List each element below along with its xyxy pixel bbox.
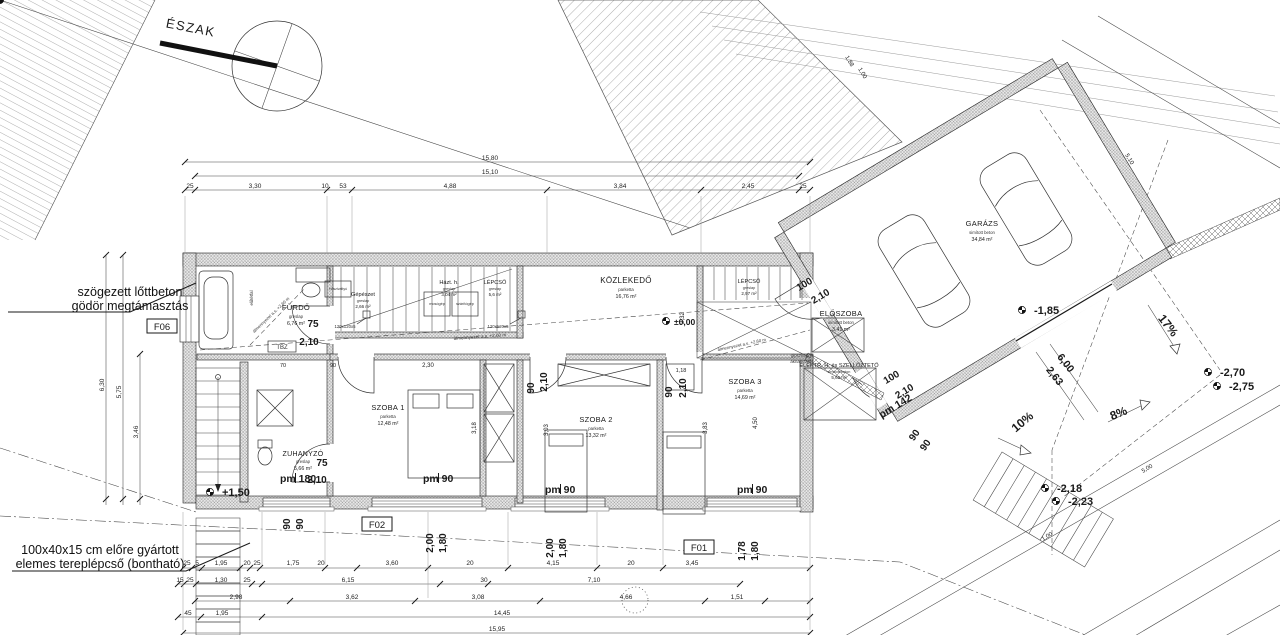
floor-plan-sheet: ÉSZAK szögezett lőttbeton gödör megtámas… [0, 0, 1280, 635]
dim-label: 1,80 [438, 533, 449, 553]
wall-liner-label: előtétfal [249, 290, 254, 305]
dim-label: 4,88 [444, 183, 457, 190]
dim-label: 15,80 [482, 155, 499, 162]
pm-dividers [296, 473, 753, 494]
dim-label: 2,00 [425, 533, 436, 553]
dim-label: 3,84 [614, 183, 627, 190]
svg-text:SZOBA 1: SZOBA 1 [371, 403, 404, 412]
svg-text:Gépészet: Gépészet [351, 292, 375, 298]
svg-text:greslap: greslap [743, 286, 755, 290]
dim-label: 2,30 [422, 363, 434, 369]
svg-text:greslap: greslap [296, 459, 311, 464]
svg-text:13,32 m²: 13,32 m² [586, 433, 607, 439]
level-drive-b: -2,75 [1229, 381, 1254, 393]
svg-text:LÉPCSŐ: LÉPCSŐ [484, 279, 507, 286]
dim-label: 90 [330, 363, 336, 369]
dim-label: 4,66 [620, 594, 633, 601]
svg-text:parketta: parketta [380, 414, 396, 419]
sill-pm90-szoba3: pm 90 [737, 484, 768, 496]
dim-label: 1,88 [843, 55, 854, 69]
svg-text:parketta: parketta [588, 426, 604, 431]
slope-17: 17% [1155, 312, 1181, 340]
dryer-label: szárítógép [456, 302, 474, 306]
dim-label: 25 [183, 560, 191, 567]
dim-label: 5,00 [1141, 463, 1155, 474]
svg-text:6,76 m²: 6,76 m² [287, 321, 305, 327]
svg-text:ZUHANYZÓ: ZUHANYZÓ [283, 449, 324, 458]
door-swings [292, 277, 887, 482]
svg-text:2,66 m²: 2,66 m² [355, 304, 371, 309]
dim-label: 25 [253, 560, 261, 567]
svg-text:simított beton: simított beton [828, 320, 854, 325]
floor-plan-drawing: ÉSZAK szögezett lőttbeton gödör megtámas… [0, 0, 1280, 635]
note-steps-line1: 100x40x15 cm előre gyártott [21, 543, 179, 557]
dim-label: 25 [243, 577, 251, 584]
slope-8: 8% [1108, 403, 1130, 423]
dim-label: 25 [186, 183, 194, 190]
level-yard-b: -2,23 [1068, 496, 1093, 508]
dim-label: 3,08 [472, 594, 485, 601]
dim-label: 90 [918, 437, 934, 453]
north-arrow [160, 21, 322, 111]
dim-label: 5 [195, 560, 199, 567]
svg-text:12,48 m²: 12,48 m² [378, 421, 399, 427]
bathroom-fixtures [199, 268, 330, 465]
room-label-szoba1: SZOBA 1 parketta 12,48 m² [371, 403, 404, 427]
dim-label: 14,45 [494, 610, 511, 617]
dim-label: 20 [466, 560, 474, 567]
dim-label: 100 [882, 369, 902, 387]
room-label-hazt: Házt. h. greslap 3,04 m² [439, 280, 459, 297]
room-label-garazs: GARÁZS simított beton 34,84 m² [966, 219, 999, 243]
svg-text:ELŐSZOBA: ELŐSZOBA [820, 309, 863, 318]
dim-label: 2,10 [307, 475, 327, 486]
north-label: ÉSZAK [165, 15, 217, 39]
svg-text:SZOBA 2: SZOBA 2 [579, 415, 612, 424]
dim-label: 90 [282, 518, 293, 530]
svg-text:greslap: greslap [289, 314, 304, 319]
dim-label: 1,95 [216, 610, 229, 617]
dim-label: 1,80 [558, 538, 569, 558]
dim-label: 1,80 [750, 541, 761, 561]
svg-text:5,62 m²: 5,62 m² [831, 375, 847, 380]
dim-label: 1,18 [676, 368, 687, 374]
svg-text:Házt. h.: Házt. h. [439, 280, 459, 286]
svg-text:greslap: greslap [443, 287, 455, 291]
dim-label: 20 [317, 560, 325, 567]
slope-10: 10% [1009, 409, 1037, 435]
svg-text:parketta: parketta [618, 287, 634, 292]
dim-label: 30 [480, 577, 488, 584]
dim-label: 90 [664, 386, 675, 398]
note-pit-line1: szögezett lőttbeton [78, 285, 183, 299]
dim-label: 1,78 [737, 541, 748, 561]
dim-label: 70 [280, 363, 286, 369]
dim-label: 6,30 [99, 378, 106, 391]
gypsum-note-2: aknalezárás [790, 359, 813, 364]
dim-label: 20 [243, 560, 251, 567]
dim-label: 2,00 [545, 538, 556, 558]
dim-label: 3,03 [544, 424, 550, 436]
svg-text:3,41 m²: 3,41 m² [832, 327, 850, 333]
svg-text:2,97 m²: 2,97 m² [741, 291, 757, 296]
room-label-lepcso-main: LÉPCSŐ greslap 2,97 m² [738, 278, 761, 296]
heatpump-label: Hőszivattyú [329, 287, 347, 291]
frame-label-f02: F02 [369, 520, 385, 531]
room-label-furdo: FÜRDŐ greslap 6,76 m² [282, 303, 310, 327]
svg-text:5,66 m²: 5,66 m² [294, 466, 312, 472]
dim-label: 15,95 [489, 626, 506, 633]
level-garage-front: -1,85 [1034, 305, 1059, 317]
svg-text:FÜRDŐ: FÜRDŐ [282, 303, 310, 312]
frame-label-f01: F01 [691, 543, 707, 554]
svg-text:5,6 m²: 5,6 m² [489, 292, 502, 297]
svg-text:KÖZLEKEDŐ: KÖZLEKEDŐ [600, 276, 652, 285]
svg-text:LÉPCSŐ: LÉPCSŐ [738, 278, 761, 285]
dim-label: 75 [307, 319, 319, 330]
dim-label: 25 [799, 183, 807, 190]
dim-label: 4,15 [547, 560, 560, 567]
room-label-lepcso-small: LÉPCSŐ greslap 5,6 m² [484, 279, 507, 297]
svg-text:34,84 m²: 34,84 m² [972, 237, 993, 243]
dim-label: 53 [339, 183, 347, 190]
sill-pm90-szoba1: pm 90 [423, 473, 454, 485]
dim-label: 1,75 [287, 560, 300, 567]
dim-label: 2,98 [230, 594, 243, 601]
dim-label: 3,30 [249, 183, 262, 190]
level-drive-a: -2,70 [1220, 367, 1245, 379]
frame-label-f06: F06 [154, 322, 170, 333]
leaders [8, 283, 714, 571]
slope-arrows [998, 305, 1180, 455]
dim-label: 10 [321, 183, 329, 190]
svg-text:greslap: greslap [357, 299, 369, 303]
dim-label: 7,10 [588, 577, 601, 584]
dim-label: 25 [186, 577, 194, 584]
svg-text:simított beton: simított beton [828, 370, 851, 374]
dim-label: 2,45 [742, 183, 755, 190]
column-label-2: 120x120x5 [487, 324, 509, 329]
dim-label: 2,10 [539, 372, 550, 392]
svg-text:parketta: parketta [737, 388, 753, 393]
svg-text:14,69 m²: 14,69 m² [735, 395, 756, 401]
dim-label: 15,10 [482, 169, 499, 176]
dim-label: 1,51 [731, 594, 744, 601]
room-label-szoba2: SZOBA 2 parketta 13,32 m² [579, 415, 612, 439]
entrance-stair [196, 368, 240, 495]
svg-text:3,04 m²: 3,04 m² [441, 292, 457, 297]
room-label-kozlekedo: KÖZLEKEDŐ parketta 16,76 m² [600, 276, 652, 300]
dim-label: 1,00 [1041, 531, 1055, 542]
dim-label: 4,50 [753, 417, 759, 429]
dim-label: 2,10 [678, 378, 689, 398]
room-label-gepeszet: Gépészet greslap 2,66 m² [351, 292, 375, 309]
terrain-hatching [0, 0, 902, 240]
svg-text:16,76 m²: 16,76 m² [616, 294, 637, 300]
washer-label: mosógép [429, 302, 445, 306]
dim-label: 3,60 [386, 560, 399, 567]
svg-text:simított beton: simított beton [969, 230, 995, 235]
dim-label: 1,00 [856, 67, 867, 81]
sill-pm90-szoba2: pm 90 [545, 484, 576, 496]
dim-label: 3,46 [133, 425, 140, 438]
note-steps-line2: elemes tereplépcső (bontható) [16, 557, 185, 571]
svg-text:greslap: greslap [489, 287, 501, 291]
tbz-label: TBZ [276, 345, 288, 351]
level-entry: +1,50 [222, 487, 250, 499]
column-label-1: 120x120x5 [334, 324, 356, 329]
dim-label: 20 [627, 560, 635, 567]
dim-label: 75 [316, 458, 328, 469]
svg-text:SZOBA 3: SZOBA 3 [728, 377, 761, 386]
dim-label: 2,10 [299, 337, 319, 348]
dim-label: 1,95 [215, 560, 228, 567]
dim-label: 6,15 [342, 577, 355, 584]
dim-label: 15 [176, 577, 184, 584]
dim-label: 90 [526, 382, 537, 394]
ceiling-note-1: álmennyezet a.s. +2,60 m [251, 296, 290, 334]
dim-label: 1,30 [215, 577, 228, 584]
dim-label: 2,32 [680, 312, 686, 324]
dimension-lines [103, 159, 813, 635]
dim-label: 90 [907, 427, 923, 443]
dim-label: 45 [184, 610, 192, 617]
gypsum-note-1: gipszkarton [791, 353, 814, 358]
dim-label: 90 [295, 518, 306, 530]
room-label-szoba3: SZOBA 3 parketta 14,69 m² [728, 377, 761, 401]
dim-label: 3,62 [346, 594, 359, 601]
dim-label: 5,75 [116, 385, 123, 398]
note-pit-line2: gödör megtámasztás [72, 299, 189, 313]
level-yard-a: -2,18 [1057, 483, 1082, 495]
dim-label: 3,45 [686, 560, 699, 567]
dim-label: 3,18 [472, 422, 478, 434]
svg-text:GARÁZS: GARÁZS [966, 219, 999, 228]
dim-label: 3,83 [703, 422, 709, 434]
